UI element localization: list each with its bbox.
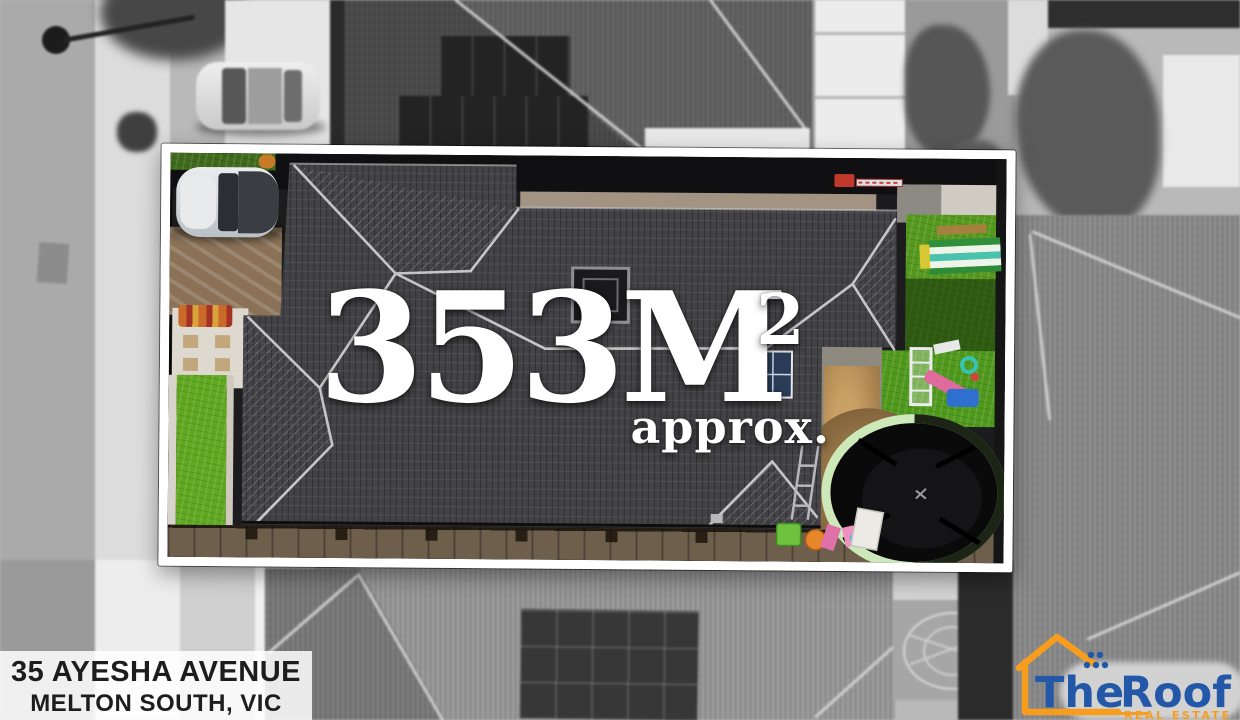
white-garage	[812, 0, 907, 155]
concrete-pad	[1163, 55, 1240, 187]
dark-fence	[958, 561, 1013, 720]
street-car	[196, 60, 322, 134]
area-superscript: 2	[756, 278, 805, 361]
street-marking	[37, 242, 70, 284]
kids-playset	[911, 339, 980, 407]
car-roof	[248, 68, 282, 124]
car-rear-window	[284, 70, 302, 122]
logo-word-the: The	[1035, 668, 1124, 718]
shadow-strip	[330, 0, 344, 152]
real-estate-aerial-photo: 353M 2 approx. 35 AYESHA AVENUE MELTON S…	[0, 0, 1240, 720]
area-qualifier: approx.	[558, 400, 830, 454]
corner-dark-roof	[1045, 0, 1240, 28]
trees	[905, 25, 990, 155]
solar-panels-upper	[440, 36, 570, 96]
striped-swing	[918, 223, 1001, 275]
address-line1: 35 AYESHA AVENUE	[0, 656, 312, 689]
roof-vent	[711, 514, 723, 523]
agency-logo: The Roof REAL ESTATE	[1008, 624, 1240, 720]
bush	[117, 112, 157, 152]
address-line2: MELTON SOUTH, VIC	[0, 690, 312, 718]
red-trailer	[834, 174, 902, 188]
car-windshield	[222, 68, 246, 124]
address-plate: 35 AYESHA AVENUE MELTON SOUTH, VIC	[0, 651, 312, 720]
solar-array-bottom	[519, 609, 699, 720]
logo-tagline: REAL ESTATE	[1124, 709, 1232, 720]
area-overlay: 353M 2 approx.	[318, 272, 878, 424]
trees-right	[1015, 30, 1160, 230]
